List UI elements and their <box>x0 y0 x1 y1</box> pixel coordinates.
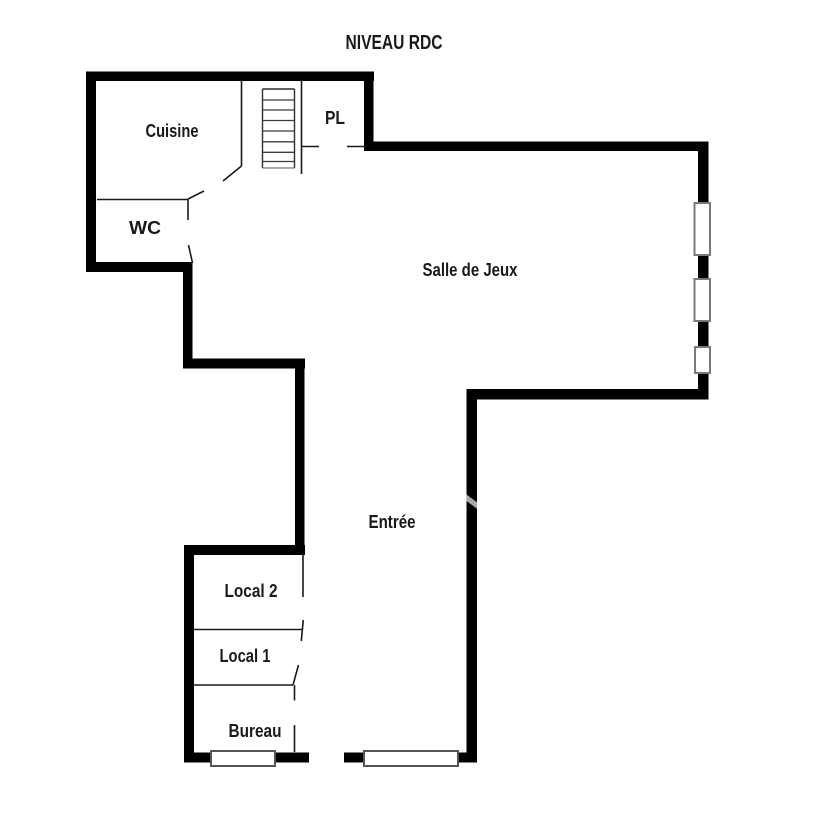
svg-text:Local 1: Local 1 <box>220 646 271 666</box>
svg-text:Bureau: Bureau <box>229 721 282 741</box>
svg-text:Local 2: Local 2 <box>225 581 278 601</box>
svg-text:Salle de Jeux: Salle de Jeux <box>423 260 518 280</box>
svg-text:WC: WC <box>129 218 161 238</box>
svg-text:NIVEAU RDC: NIVEAU RDC <box>346 32 443 54</box>
svg-text:Cuisine: Cuisine <box>146 121 199 141</box>
svg-text:PL: PL <box>325 108 345 128</box>
svg-text:Entrée: Entrée <box>369 512 416 532</box>
